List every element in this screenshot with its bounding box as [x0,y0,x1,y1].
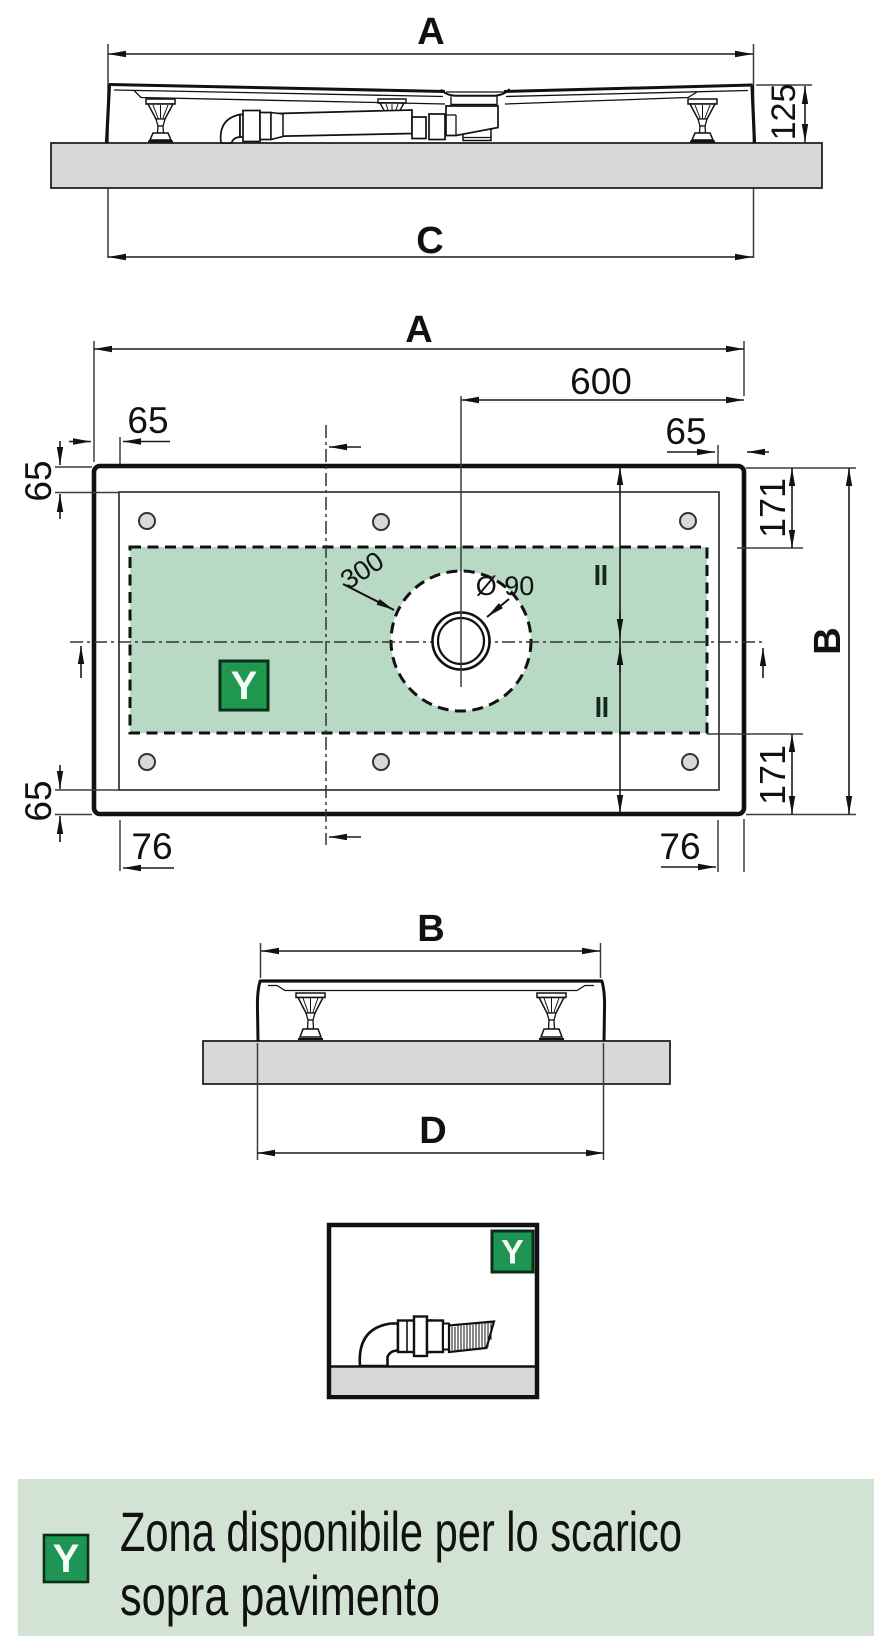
svg-text:600: 600 [570,361,632,402]
svg-text:A: A [417,11,444,53]
svg-text:125: 125 [765,84,803,141]
svg-text:76: 76 [131,826,172,867]
svg-text:76: 76 [659,826,700,867]
svg-text:171: 171 [752,745,793,805]
svg-text:B: B [417,908,444,950]
svg-text:Y: Y [53,1537,80,1581]
svg-text:C: C [416,220,443,262]
svg-text:sopra pavimento: sopra pavimento [120,1564,440,1627]
svg-text:65: 65 [665,411,706,452]
svg-text:Ø 90: Ø 90 [476,571,535,601]
svg-text:Y: Y [501,1234,524,1272]
svg-text:Y: Y [231,664,258,708]
svg-text:65: 65 [18,780,59,821]
svg-text:65: 65 [18,460,59,501]
svg-text:65: 65 [127,400,168,441]
svg-text:A: A [405,309,432,351]
svg-text:D: D [419,1110,446,1152]
svg-text:B: B [807,627,849,654]
svg-text:171: 171 [752,478,793,538]
svg-text:Zona disponibile per lo scaric: Zona disponibile per lo scarico [120,1500,682,1563]
